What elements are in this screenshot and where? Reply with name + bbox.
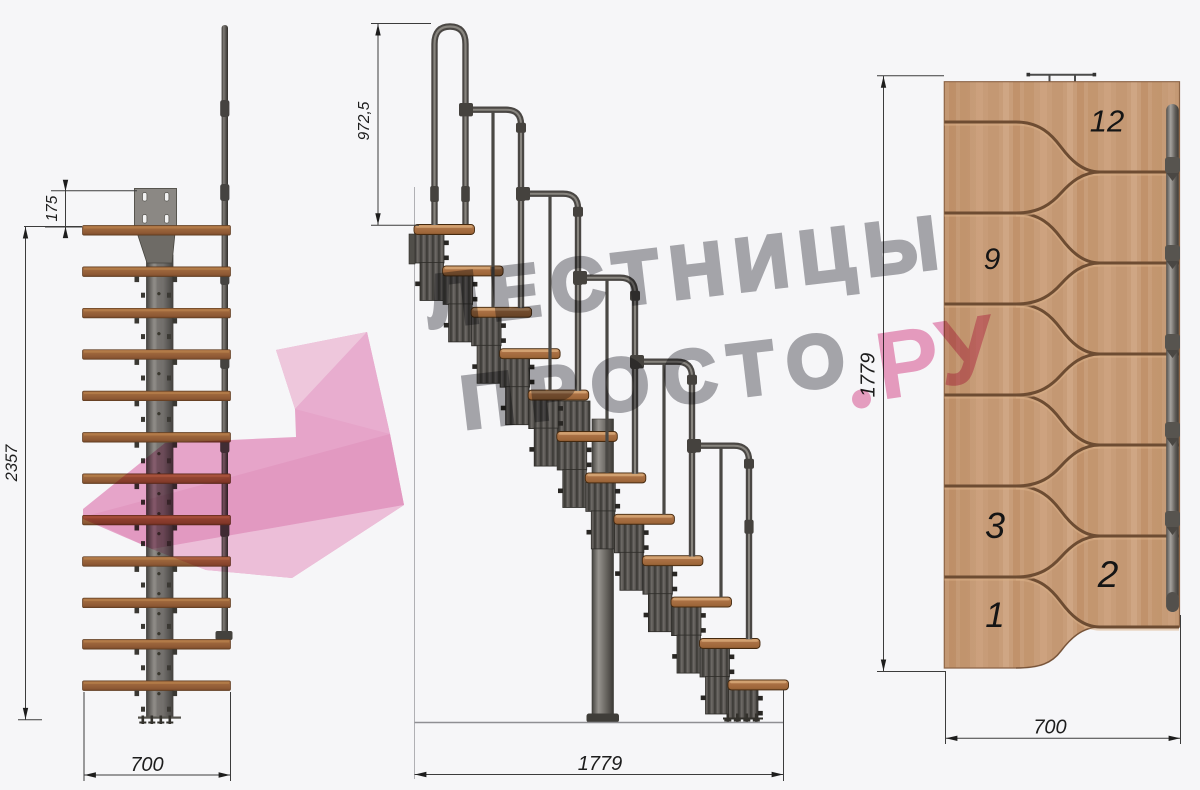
svg-text:12: 12 xyxy=(1090,104,1124,139)
svg-text:700: 700 xyxy=(130,754,163,776)
svg-text:175: 175 xyxy=(44,195,61,221)
svg-text:1779: 1779 xyxy=(578,753,623,775)
svg-text:700: 700 xyxy=(1033,717,1066,739)
svg-text:9: 9 xyxy=(984,243,1001,276)
svg-text:1: 1 xyxy=(985,596,1004,635)
svg-text:2357: 2357 xyxy=(3,444,21,483)
svg-text:972,5: 972,5 xyxy=(356,101,373,140)
svg-text:2: 2 xyxy=(1097,554,1119,595)
svg-text:3: 3 xyxy=(985,505,1005,546)
